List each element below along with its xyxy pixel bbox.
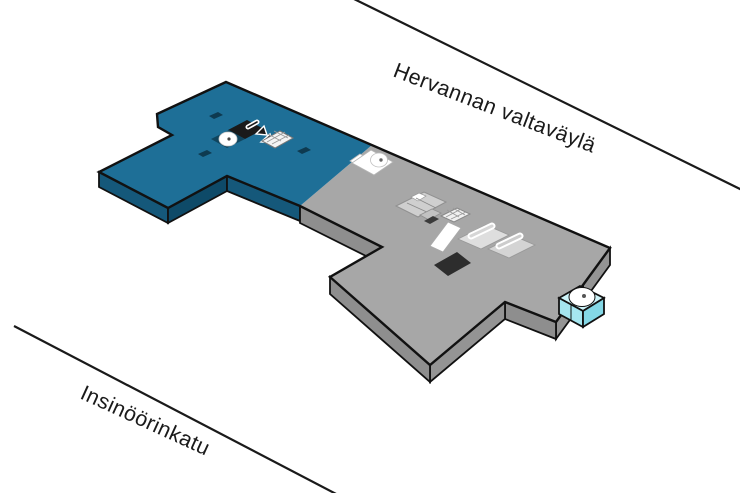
tower-dot <box>582 294 586 298</box>
map-canvas: Hervannan valtaväylä Insinöörinkatu <box>0 0 740 493</box>
elevator-dot <box>227 137 230 140</box>
landing-dot <box>379 158 382 161</box>
campus-map: Hervannan valtaväylä Insinöörinkatu <box>0 0 740 493</box>
